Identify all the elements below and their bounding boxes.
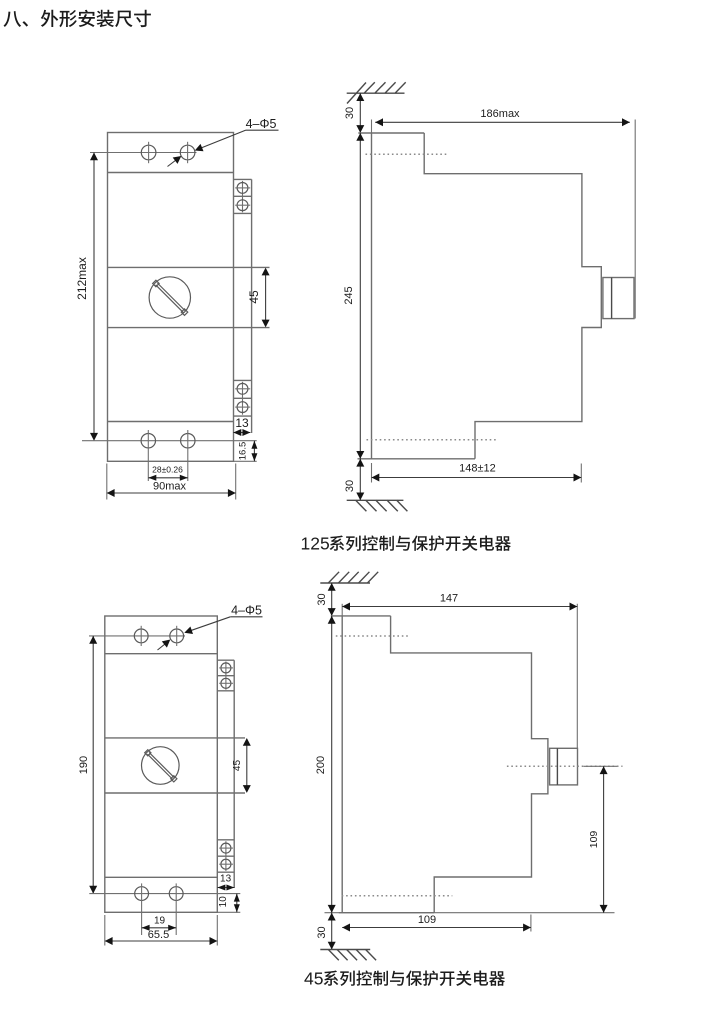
svg-text:16.5: 16.5	[238, 442, 249, 461]
svg-text:30: 30	[344, 480, 356, 492]
svg-text:4–Φ5: 4–Φ5	[231, 604, 262, 618]
svg-text:65.5: 65.5	[148, 929, 169, 941]
svg-text:109: 109	[418, 914, 436, 926]
svg-text:30: 30	[316, 926, 328, 938]
svg-text:19: 19	[154, 916, 166, 927]
svg-text:45: 45	[304, 969, 323, 989]
svg-text:28±0.26: 28±0.26	[152, 465, 183, 475]
svg-text:125: 125	[301, 534, 330, 554]
svg-text:30: 30	[344, 107, 356, 119]
svg-text:200: 200	[315, 756, 327, 774]
svg-text:13: 13	[235, 416, 249, 430]
svg-text:148±12: 148±12	[459, 463, 496, 475]
svg-text:13: 13	[220, 874, 232, 885]
svg-text:4–Φ5: 4–Φ5	[246, 117, 277, 131]
svg-text:245: 245	[343, 286, 355, 304]
svg-text:90max: 90max	[153, 481, 187, 493]
svg-text:186max: 186max	[480, 108, 520, 120]
svg-text:45: 45	[247, 290, 261, 304]
svg-text:30: 30	[316, 593, 328, 605]
svg-text:45: 45	[232, 760, 243, 772]
svg-text:147: 147	[440, 593, 458, 605]
svg-text:190: 190	[78, 756, 90, 774]
svg-text:109: 109	[588, 831, 600, 849]
svg-text:212max: 212max	[75, 257, 89, 300]
svg-text:10: 10	[218, 896, 229, 908]
